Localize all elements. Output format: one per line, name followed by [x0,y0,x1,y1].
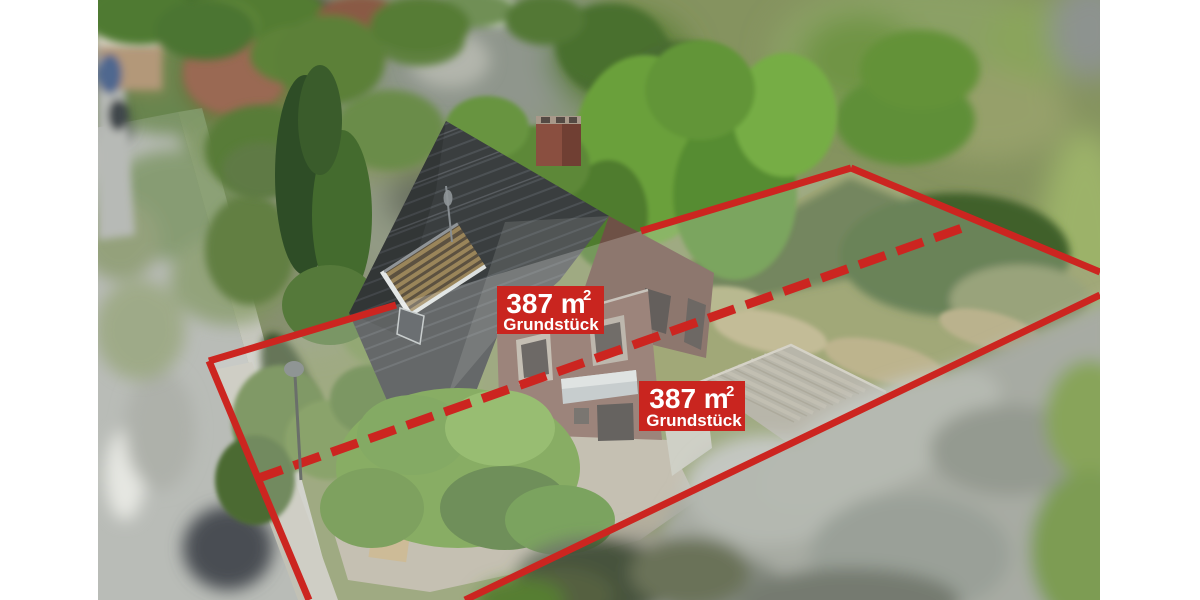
svg-text:Grundstück: Grundstück [646,411,742,430]
svg-text:Grundstück: Grundstück [503,315,599,334]
svg-text:387 m: 387 m [649,383,728,414]
svg-text:2: 2 [726,383,734,400]
svg-text:2: 2 [583,287,591,304]
